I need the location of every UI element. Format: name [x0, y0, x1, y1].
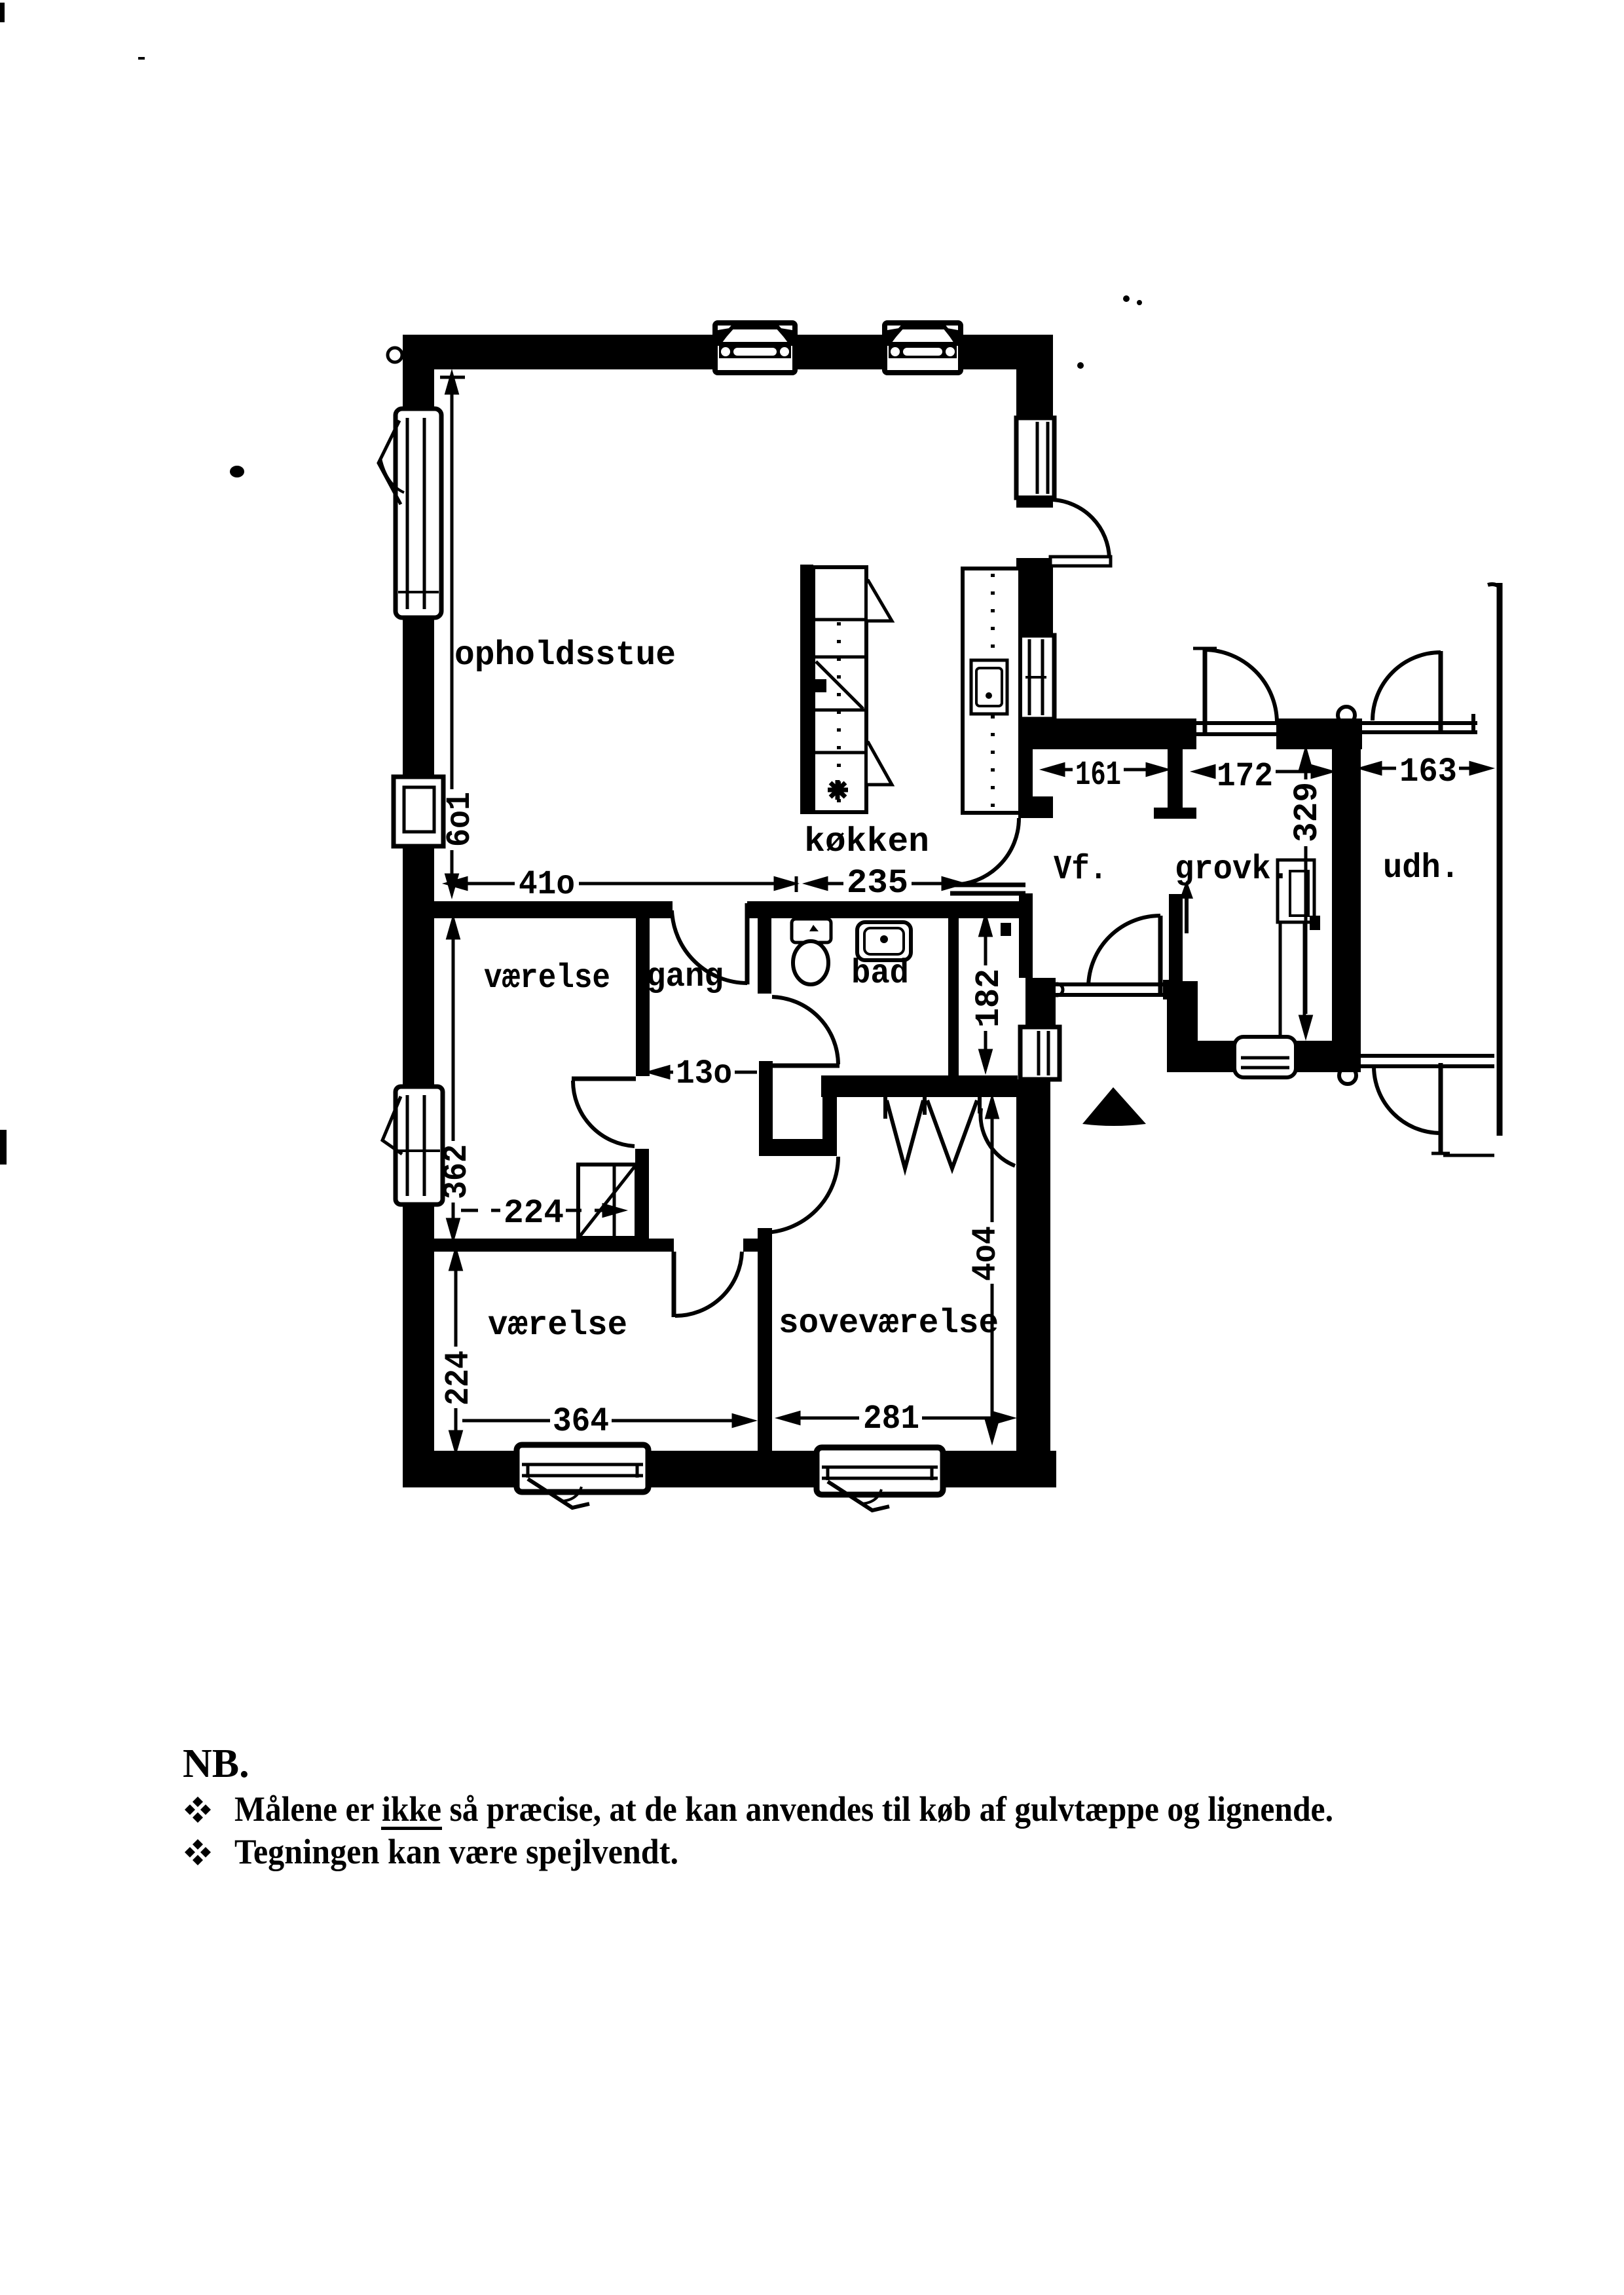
svg-text:224: 224 — [504, 1194, 564, 1233]
svg-text:161: 161 — [1075, 756, 1121, 794]
svg-text:Tegningen kan være spejlvendt.: Tegningen kan være spejlvendt. — [234, 1832, 678, 1871]
svg-text:329: 329 — [1288, 782, 1327, 842]
svg-text:værelse: værelse — [484, 959, 610, 998]
svg-text:Vf.: Vf. — [1054, 850, 1107, 889]
svg-text:opholdsstue: opholdsstue — [454, 636, 676, 675]
svg-text:364: 364 — [553, 1402, 609, 1441]
svg-text:udh.: udh. — [1383, 849, 1460, 887]
svg-text:163: 163 — [1399, 753, 1457, 791]
svg-text:224: 224 — [439, 1351, 478, 1406]
svg-text:bad: bad — [851, 954, 909, 993]
svg-text:gang: gang — [646, 958, 724, 996]
svg-text:13o: 13o — [676, 1054, 732, 1093]
svg-text:235: 235 — [847, 864, 908, 903]
svg-text:362: 362 — [437, 1144, 476, 1199]
svg-text:grovk.: grovk. — [1175, 850, 1290, 889]
svg-text:NB.: NB. — [183, 1742, 249, 1786]
svg-text:Målene er ikke så præcise, at: Målene er ikke så præcise, at de kan anv… — [234, 1789, 1333, 1829]
svg-text:41o: 41o — [519, 865, 575, 904]
svg-text:172: 172 — [1217, 757, 1273, 796]
svg-text:4o4: 4o4 — [967, 1226, 1005, 1281]
svg-text:281: 281 — [863, 1400, 919, 1438]
svg-text:6o1: 6o1 — [441, 792, 479, 847]
svg-text:182: 182 — [970, 969, 1008, 1028]
svg-text:værelse: værelse — [488, 1306, 627, 1345]
svg-text:soveværelse: soveværelse — [779, 1304, 999, 1343]
svg-text:køkken: køkken — [804, 823, 929, 861]
